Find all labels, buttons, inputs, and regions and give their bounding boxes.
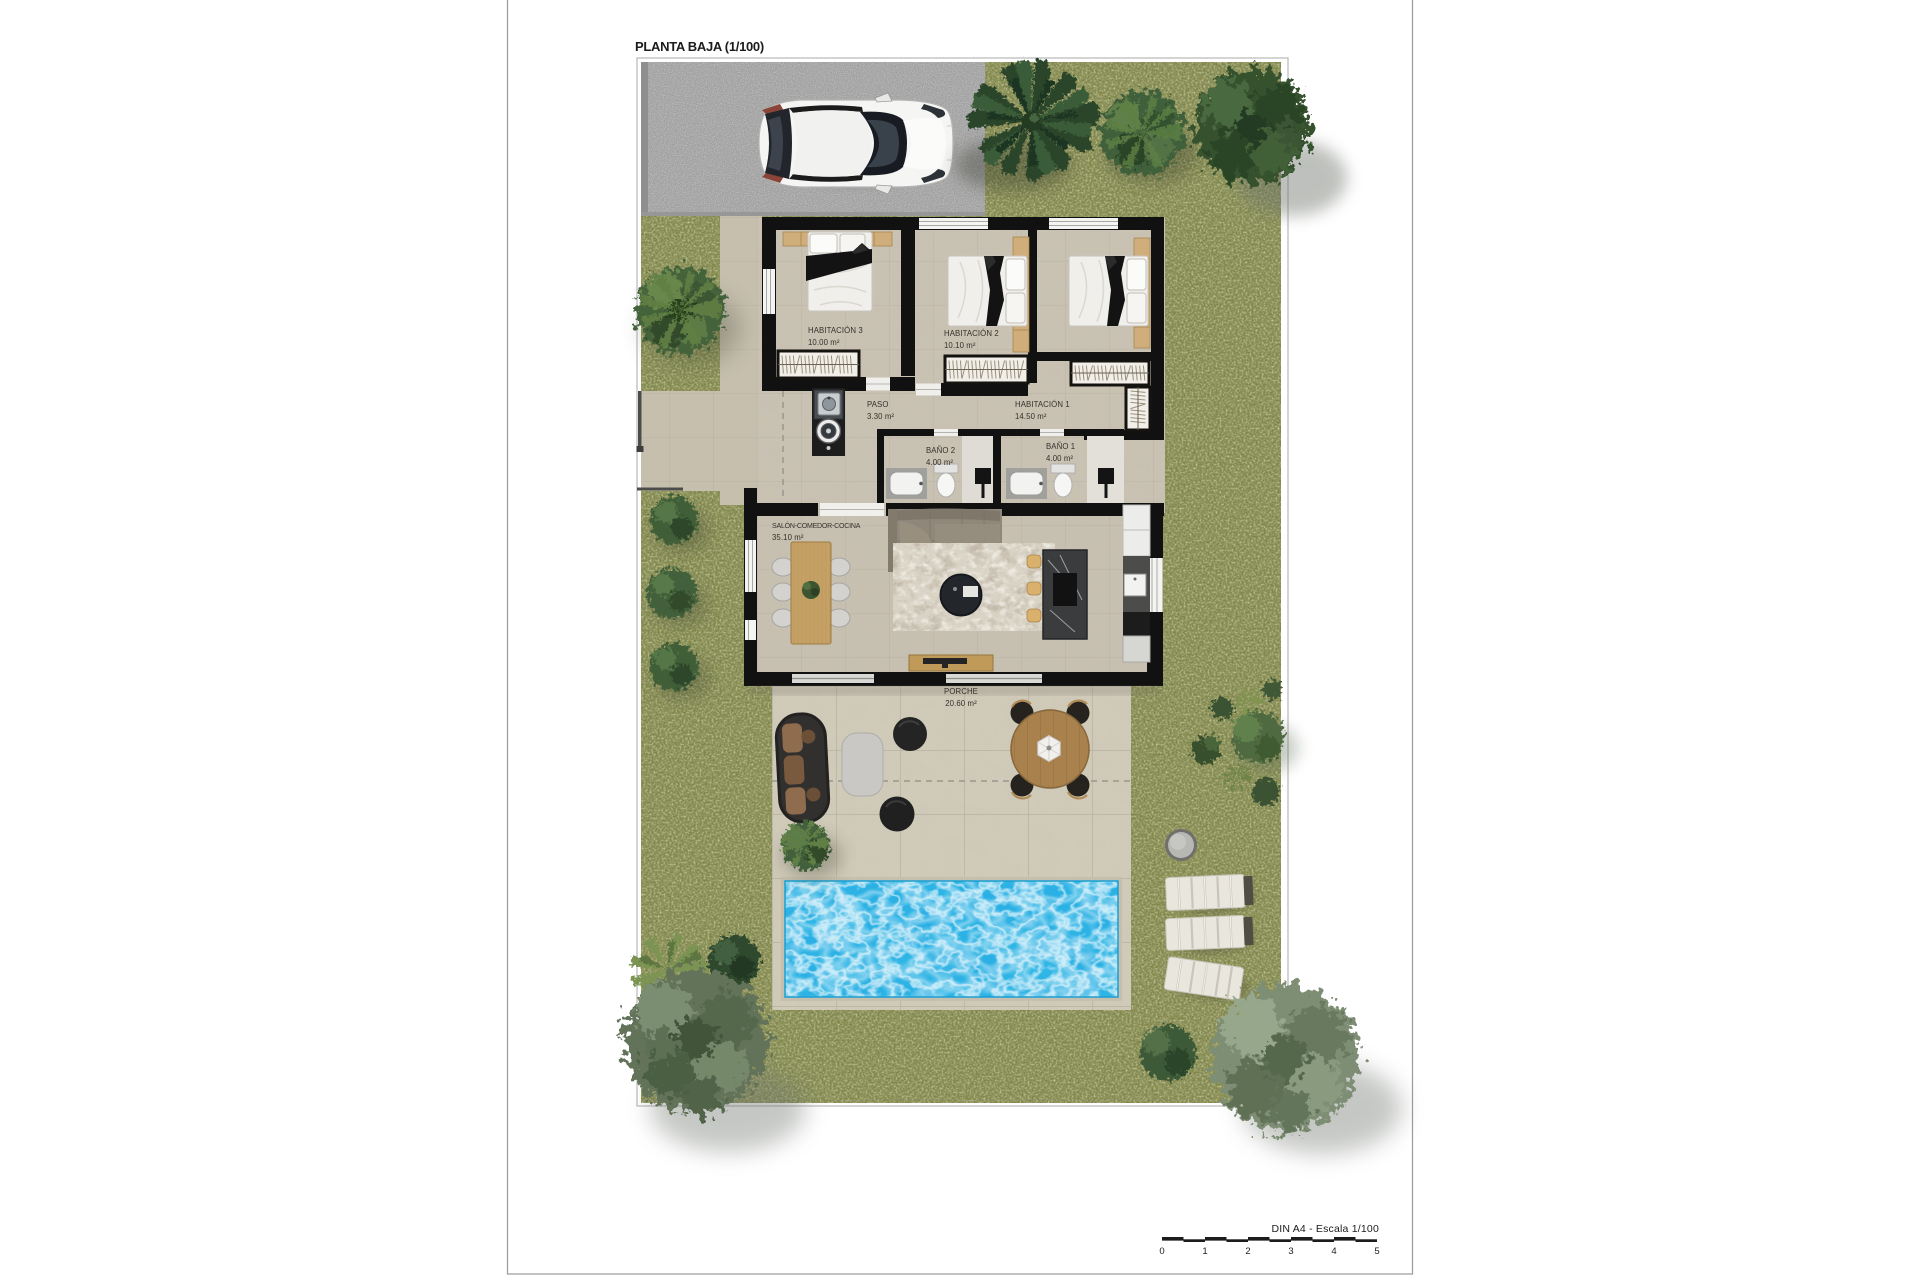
svg-text:0: 0 [1159, 1246, 1164, 1257]
svg-text:10.10 m²: 10.10 m² [944, 341, 976, 350]
svg-text:4: 4 [1331, 1246, 1336, 1257]
svg-text:BAÑO 1: BAÑO 1 [1046, 442, 1075, 451]
svg-text:4.00 m²: 4.00 m² [1046, 454, 1073, 463]
svg-text:HABITACIÓN 2: HABITACIÓN 2 [944, 329, 999, 338]
svg-text:SALÓN-COMEDOR-COCINA: SALÓN-COMEDOR-COCINA [772, 521, 861, 530]
svg-text:PLANTA BAJA (1/100): PLANTA BAJA (1/100) [635, 39, 764, 54]
svg-text:2: 2 [1245, 1246, 1250, 1257]
svg-text:1: 1 [1202, 1246, 1207, 1257]
svg-text:4.00 m²: 4.00 m² [926, 458, 953, 467]
svg-text:HABITACIÓN 3: HABITACIÓN 3 [808, 326, 863, 335]
svg-text:14.50 m²: 14.50 m² [1015, 412, 1047, 421]
svg-text:5: 5 [1374, 1246, 1379, 1257]
svg-text:PASO: PASO [867, 400, 889, 409]
svg-text:10.00 m²: 10.00 m² [808, 338, 840, 347]
svg-text:35.10 m²: 35.10 m² [772, 533, 804, 542]
svg-text:HABITACIÓN 1: HABITACIÓN 1 [1015, 400, 1070, 409]
svg-text:3: 3 [1288, 1246, 1293, 1257]
svg-text:20.60 m²: 20.60 m² [945, 699, 977, 708]
svg-text:3.30 m²: 3.30 m² [867, 412, 894, 421]
svg-text:BAÑO 2: BAÑO 2 [926, 446, 955, 455]
svg-text:DIN A4 - Escala 1/100: DIN A4 - Escala 1/100 [1271, 1223, 1379, 1235]
svg-text:PORCHE: PORCHE [944, 687, 978, 696]
